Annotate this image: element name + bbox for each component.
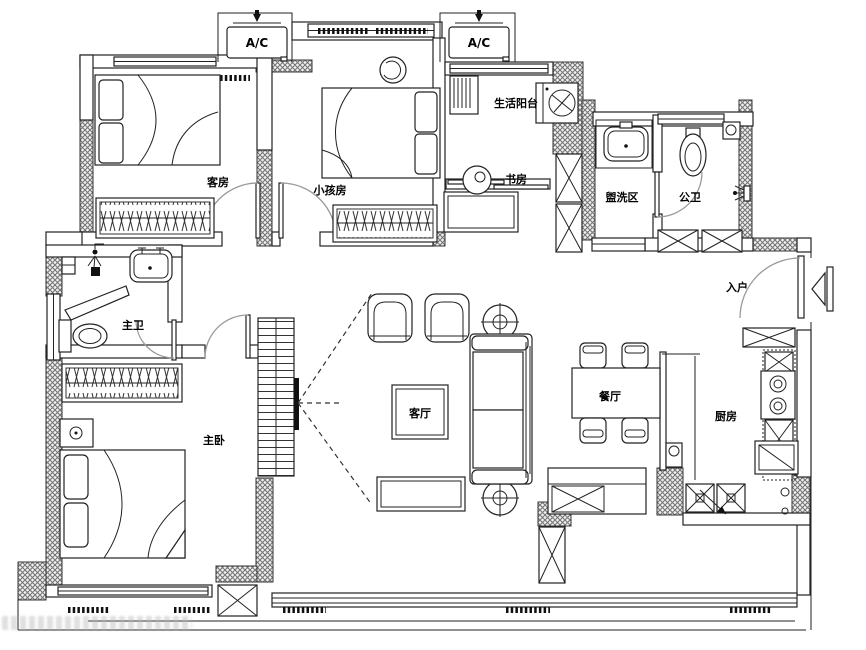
window-balcony (450, 64, 548, 73)
watermark (2, 616, 192, 630)
furniture-kitchen (686, 328, 798, 514)
door-master-bedroom (205, 315, 250, 358)
ac-label-1: A/C (246, 36, 269, 50)
floor-plan: 客房 小孩房 生活阳台 书房 盥洗区 公卫 入户 主卫 主卧 客厅 餐厅 厨房 … (0, 0, 866, 650)
sliding-door-balcony (446, 179, 550, 189)
room-label-balcony: 生活阳台 (494, 96, 538, 110)
window-washblock (658, 114, 724, 124)
room-label-kids: 小孩房 (313, 183, 347, 197)
room-label-entry: 入户 (726, 280, 748, 294)
room-label-living: 客厅 (408, 406, 431, 420)
room-label-study: 书房 (505, 172, 527, 186)
door-entry (740, 256, 833, 318)
window-master-side (47, 294, 60, 360)
room-label-masterbed: 主卧 (203, 433, 225, 447)
room-label-guest: 客房 (206, 175, 229, 189)
room-label-kitchen: 厨房 (715, 409, 737, 423)
ac-label-2: A/C (468, 36, 491, 50)
room-label-masterbath: 主卫 (122, 318, 144, 332)
room-label-dining: 餐厅 (598, 389, 621, 403)
room-label-publicwc: 公卫 (679, 191, 701, 204)
furniture-kids-room (322, 57, 440, 242)
furniture-living-room (258, 293, 565, 583)
room-label-washarea: 盥洗区 (606, 190, 639, 204)
furniture-master-bathroom (59, 244, 172, 352)
furniture-study (444, 154, 582, 252)
furniture-wash-area (596, 120, 652, 168)
floor-plan-drawing: 客房 小孩房 生活阳台 书房 盥洗区 公卫 入户 主卫 主卧 客厅 餐厅 厨房 … (0, 0, 866, 650)
window-guest (114, 57, 216, 66)
furniture-public-bathroom (658, 122, 750, 252)
window-master-bottom (58, 587, 208, 595)
furniture-guest-room (95, 75, 220, 238)
